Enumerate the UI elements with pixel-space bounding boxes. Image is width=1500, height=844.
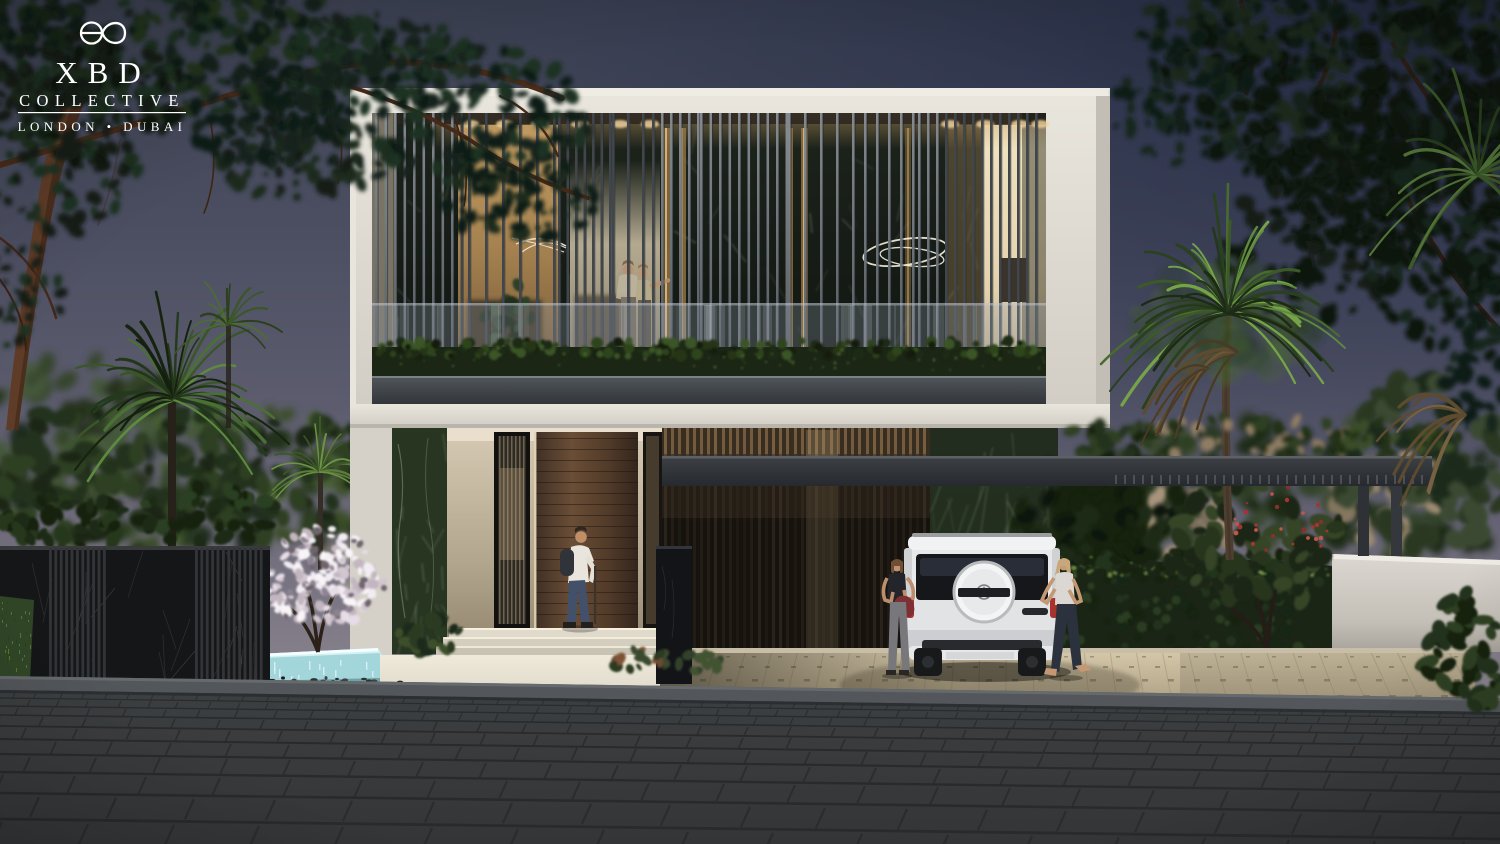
svg-text:XBD: XBD xyxy=(55,55,150,90)
svg-text:LONDON • DUBAI: LONDON • DUBAI xyxy=(18,119,187,134)
svg-text:COLLECTIVE: COLLECTIVE xyxy=(19,91,185,110)
